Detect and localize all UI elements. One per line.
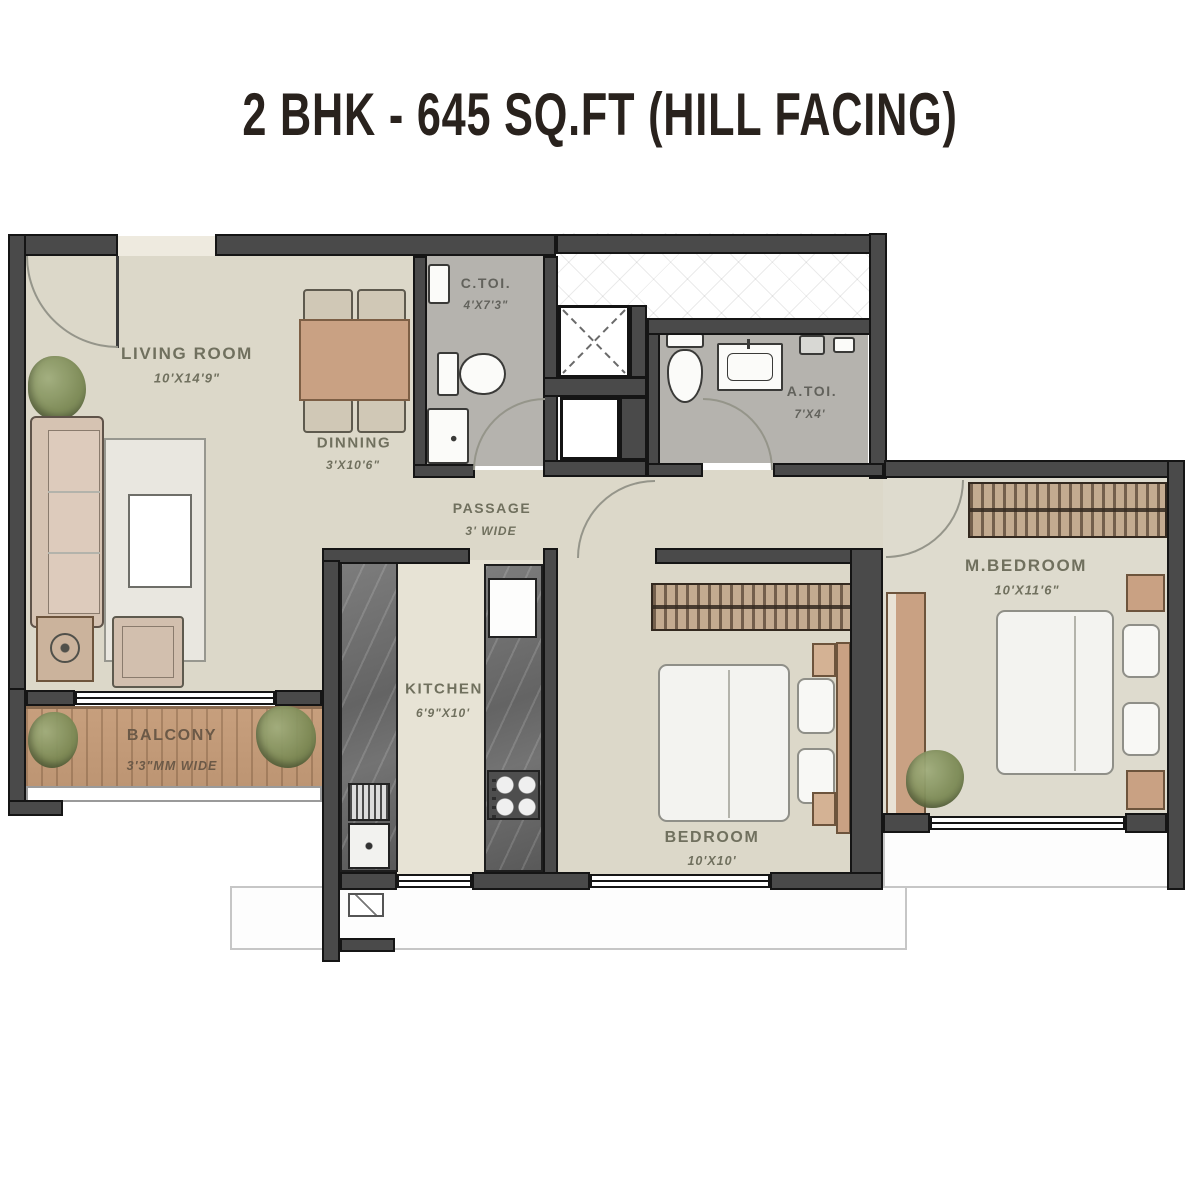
wall	[773, 463, 884, 477]
decor-bowl-icon	[50, 633, 80, 663]
kitchen-counter-left	[340, 560, 398, 872]
nightstand	[812, 643, 836, 677]
shower-tray	[427, 408, 469, 464]
sofa-cushion-divider	[48, 552, 100, 554]
wall	[340, 938, 395, 952]
dining-chair	[303, 289, 353, 323]
mattress-divider	[728, 670, 730, 818]
geyser	[799, 335, 825, 355]
washbasin-counter	[717, 343, 783, 391]
wall	[413, 256, 427, 470]
wall	[275, 690, 322, 706]
bedroom-window	[590, 874, 770, 888]
sofa-cushion-divider	[48, 491, 100, 493]
toilet-tank	[666, 333, 704, 348]
armchair-seat	[122, 626, 174, 678]
wall	[770, 872, 883, 890]
wall	[8, 800, 63, 816]
wall	[543, 460, 647, 477]
master-bedroom-window	[930, 816, 1125, 830]
gas-stove	[487, 770, 540, 820]
pillow	[1122, 624, 1160, 678]
wall	[655, 548, 872, 564]
kitchen-label: KITCHEN	[405, 681, 483, 698]
dining-chair	[357, 398, 406, 433]
wall	[322, 560, 340, 962]
wall	[215, 234, 556, 256]
wall	[647, 318, 660, 477]
wardrobe	[651, 583, 853, 631]
attached-toilet-label: A.TOI.	[787, 383, 838, 399]
sofa-seat	[48, 430, 100, 614]
lift-shaft	[558, 305, 630, 378]
wall	[556, 234, 887, 254]
bed	[996, 610, 1114, 775]
wall	[850, 548, 883, 890]
wall	[630, 305, 647, 378]
tap-icon	[747, 339, 750, 349]
wall	[8, 234, 26, 704]
sink-drainboard	[348, 783, 390, 821]
wall	[884, 460, 1170, 478]
wall	[869, 233, 887, 479]
refrigerator	[488, 578, 537, 638]
wall	[1167, 460, 1185, 890]
toilet-tank	[437, 352, 459, 396]
plan-title: 2 BHK - 645 SQ.FT (HILL FACING)	[242, 80, 957, 149]
wall	[472, 872, 590, 890]
headboard	[836, 642, 851, 834]
side-table	[36, 616, 94, 682]
wall	[1125, 813, 1167, 833]
dining-chair	[357, 289, 406, 323]
pillow	[1122, 702, 1160, 756]
balcony-label: BALCONY	[127, 727, 217, 745]
nightstand	[1126, 770, 1165, 810]
bedroom-label: BEDROOM	[665, 829, 760, 847]
dining-dims: 3'X10'6"	[326, 458, 380, 472]
washbasin-bowl	[727, 353, 773, 381]
wall	[543, 377, 647, 397]
master-bedroom-dims: 10'X11'6"	[994, 583, 1059, 598]
common-toilet-dims: 4'X7'3"	[464, 300, 509, 312]
passage-dims: 3' WIDE	[465, 524, 516, 538]
mattress-divider	[1074, 616, 1076, 771]
master-bedroom-label: M.BEDROOM	[965, 556, 1087, 576]
wall	[647, 318, 884, 335]
attached-toilet-dims: 7'X4'	[795, 409, 826, 421]
kitchen-counter-right	[484, 564, 543, 872]
service-duct	[560, 397, 620, 460]
living-room-label: LIVING ROOM	[121, 344, 253, 364]
dining-table	[299, 319, 410, 401]
kitchen-dims: 6'9"X10'	[416, 706, 470, 720]
wall	[620, 397, 647, 460]
kitchen-sink	[348, 823, 390, 869]
kitchen-window	[397, 874, 472, 888]
living-room-dims: 10'X14'9"	[154, 371, 220, 386]
pillow	[797, 678, 835, 734]
toilet-bowl	[459, 353, 506, 395]
dining-chair	[303, 398, 353, 433]
kitchen-duct	[348, 893, 384, 917]
wall	[322, 548, 470, 564]
plant	[256, 706, 316, 768]
entry-threshold	[118, 236, 215, 256]
washbasin	[428, 264, 450, 304]
apron-mbedroom	[883, 828, 1185, 888]
wall	[26, 690, 75, 706]
balcony-dims: 3'3"MM WIDE	[127, 759, 218, 773]
lift-cross-icon	[561, 308, 627, 375]
passage-label: PASSAGE	[453, 500, 532, 516]
floor-plan-page: 2 BHK - 645 SQ.FT (HILL FACING)	[0, 0, 1200, 1200]
wall	[340, 872, 397, 890]
nightstand	[812, 792, 836, 826]
bedroom-dims: 10'X10'	[687, 854, 736, 868]
sofa	[30, 416, 104, 628]
wardrobe	[968, 482, 1167, 538]
wall	[543, 256, 558, 477]
wall	[413, 464, 475, 478]
bed	[658, 664, 790, 822]
balcony-window	[75, 691, 275, 705]
common-toilet-label: C.TOI.	[461, 275, 512, 291]
plant	[28, 356, 86, 420]
dining-label: DINNING	[317, 435, 392, 452]
towel-rail	[833, 337, 855, 353]
armchair	[112, 616, 184, 688]
wall	[883, 813, 930, 833]
balcony-sill	[26, 786, 322, 802]
nightstand	[1126, 574, 1165, 612]
wall	[8, 688, 26, 808]
title-bar: 2 BHK - 645 SQ.FT (HILL FACING)	[0, 84, 1200, 146]
wall	[647, 463, 703, 477]
coffee-table	[128, 494, 192, 588]
wall	[543, 548, 558, 890]
